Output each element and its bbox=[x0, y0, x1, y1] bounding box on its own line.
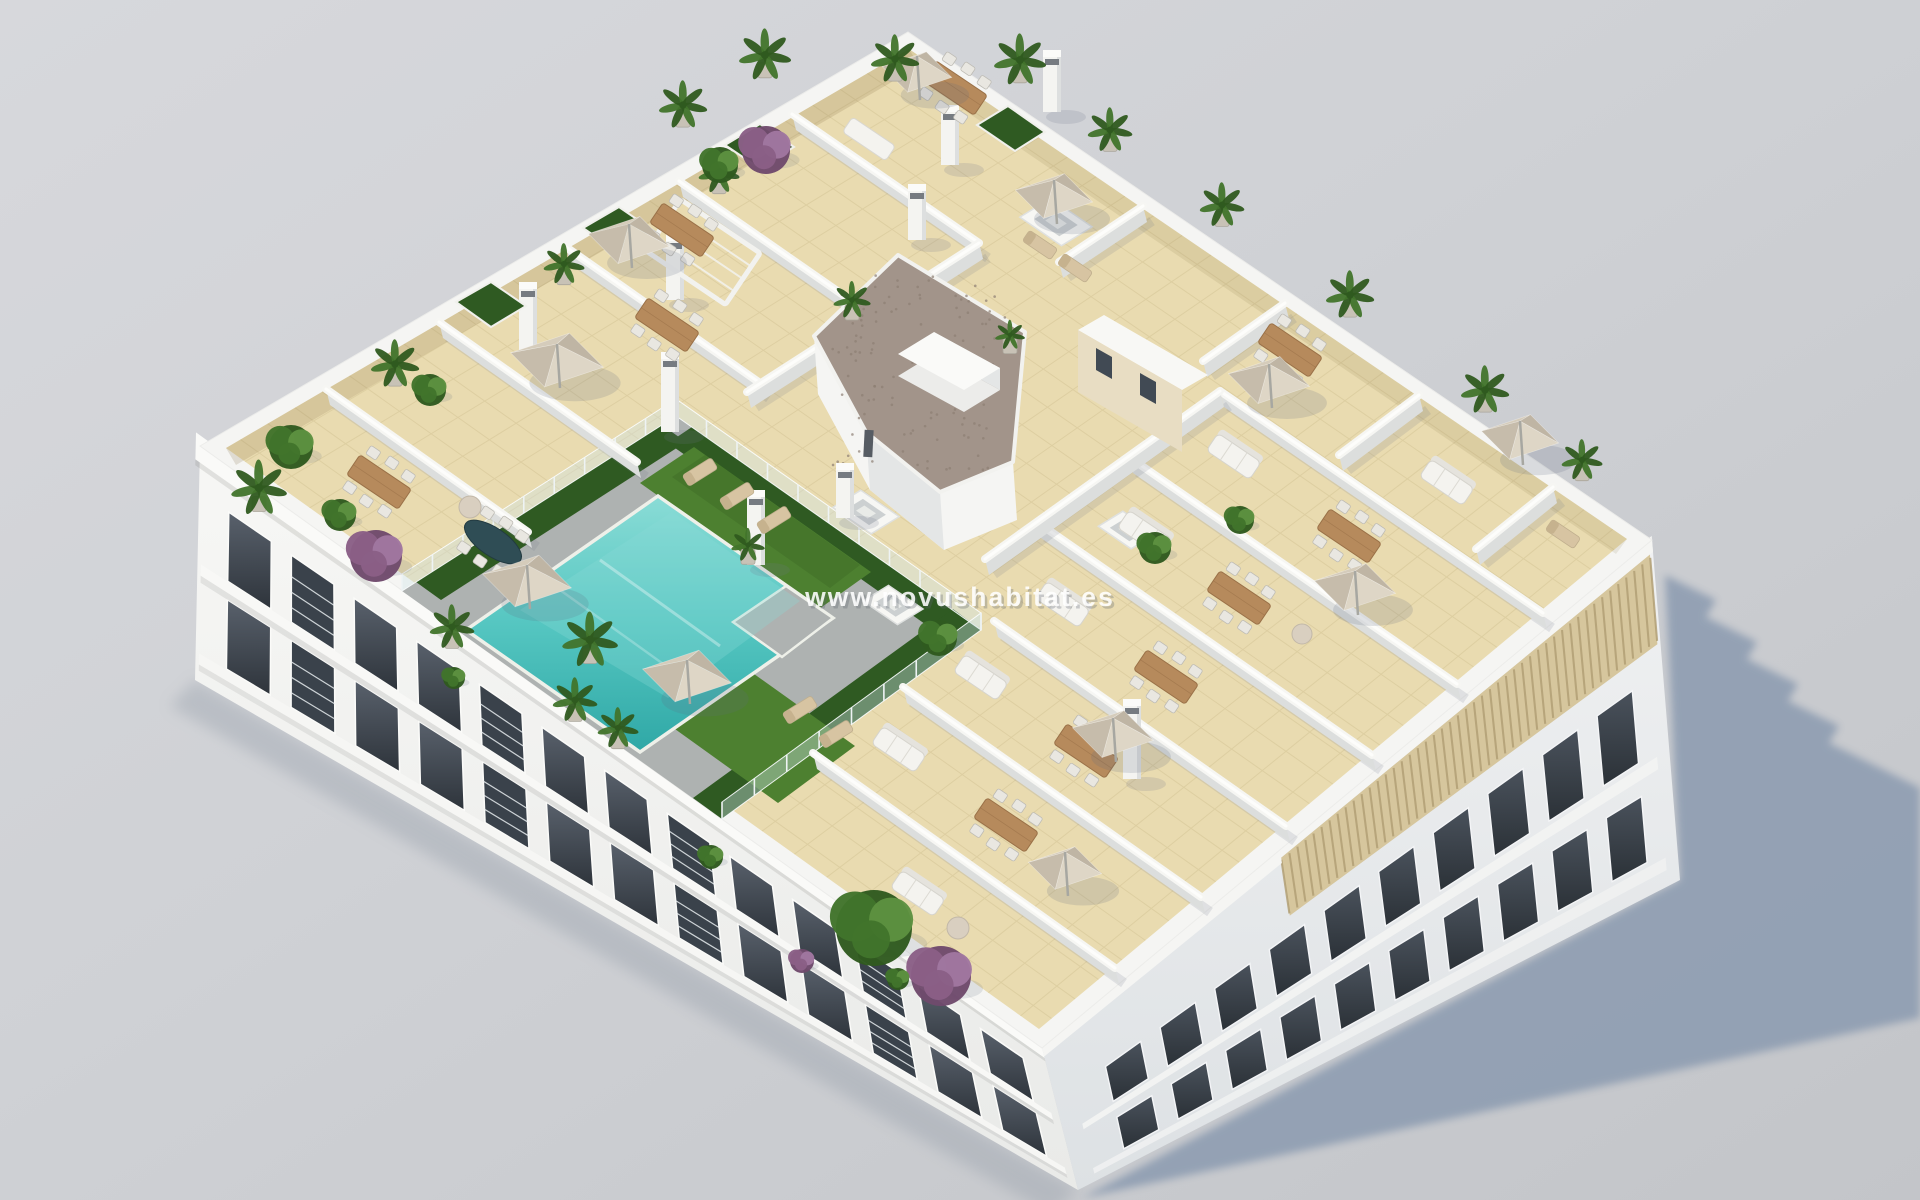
render-scene: www.novushabitat.es www.novushabitat.es bbox=[0, 0, 1920, 1200]
building-render: www.novushabitat.es www.novushabitat.es bbox=[0, 0, 1920, 1200]
watermark-text: www.novushabitat.es bbox=[804, 582, 1115, 612]
watermark: www.novushabitat.es www.novushabitat.es bbox=[804, 582, 1117, 615]
